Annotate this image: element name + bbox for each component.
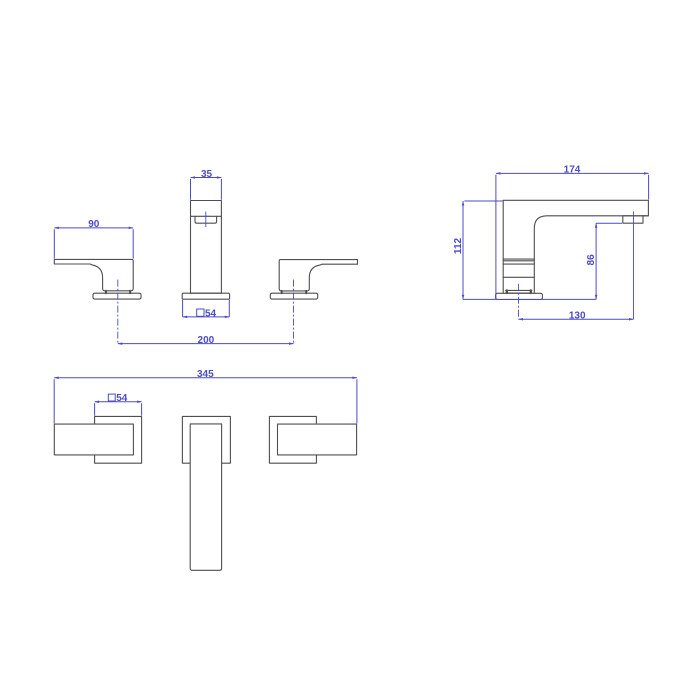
svg-text:54: 54 [205,308,217,319]
svg-text:90: 90 [88,219,100,230]
svg-text:35: 35 [201,169,213,180]
svg-text:200: 200 [198,335,215,346]
svg-text:130: 130 [569,311,586,322]
svg-text:345: 345 [197,369,214,380]
svg-text:174: 174 [564,165,581,176]
svg-text:86: 86 [586,254,597,266]
svg-text:112: 112 [453,237,464,254]
svg-text:54: 54 [116,393,128,404]
